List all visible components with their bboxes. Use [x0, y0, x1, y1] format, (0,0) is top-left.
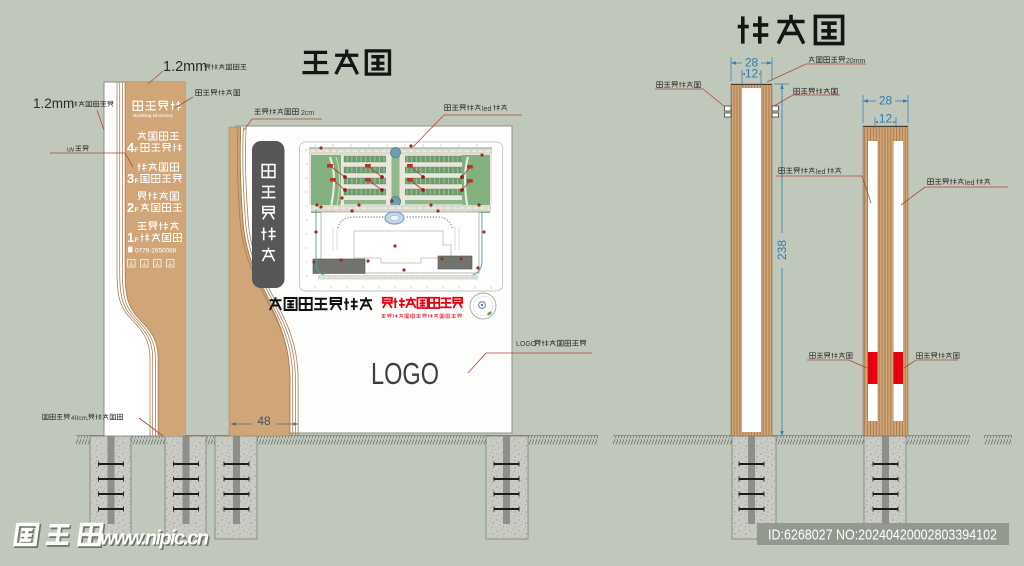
svg-text:led: led — [482, 106, 491, 113]
svg-text:3: 3 — [127, 171, 134, 186]
svg-text:1: 1 — [127, 230, 134, 245]
svg-text:F: F — [135, 178, 139, 185]
svg-text:1.2mm: 1.2mm — [33, 96, 74, 111]
svg-text:Building Directory: Building Directory — [133, 113, 173, 118]
svg-text:led: led — [816, 169, 825, 176]
svg-text:0779-2650088: 0779-2650088 — [135, 248, 177, 255]
svg-text:F: F — [135, 237, 139, 244]
svg-text:20mm: 20mm — [846, 58, 866, 65]
svg-text:12: 12 — [879, 112, 893, 126]
svg-text:led: led — [965, 180, 974, 187]
svg-text:40cm,: 40cm, — [71, 415, 89, 422]
svg-text:F: F — [135, 147, 139, 154]
svg-text:238: 238 — [775, 240, 789, 260]
svg-text:LOGO: LOGO — [371, 356, 439, 391]
svg-text:www.nipic.cn: www.nipic.cn — [100, 528, 209, 550]
svg-text:uv: uv — [67, 147, 75, 154]
svg-text:12: 12 — [745, 67, 759, 81]
svg-text:2: 2 — [127, 200, 134, 215]
svg-text:1.2mm: 1.2mm — [163, 59, 207, 75]
svg-text:2cm: 2cm — [301, 110, 314, 117]
svg-text:48: 48 — [257, 414, 271, 428]
svg-text:LOGO: LOGO — [516, 341, 537, 348]
svg-text:28: 28 — [879, 94, 893, 108]
svg-text:F: F — [135, 207, 139, 214]
svg-text:ID:6268027 NO:2024042000280339: ID:6268027 NO:20240420002803394102 — [768, 527, 997, 544]
